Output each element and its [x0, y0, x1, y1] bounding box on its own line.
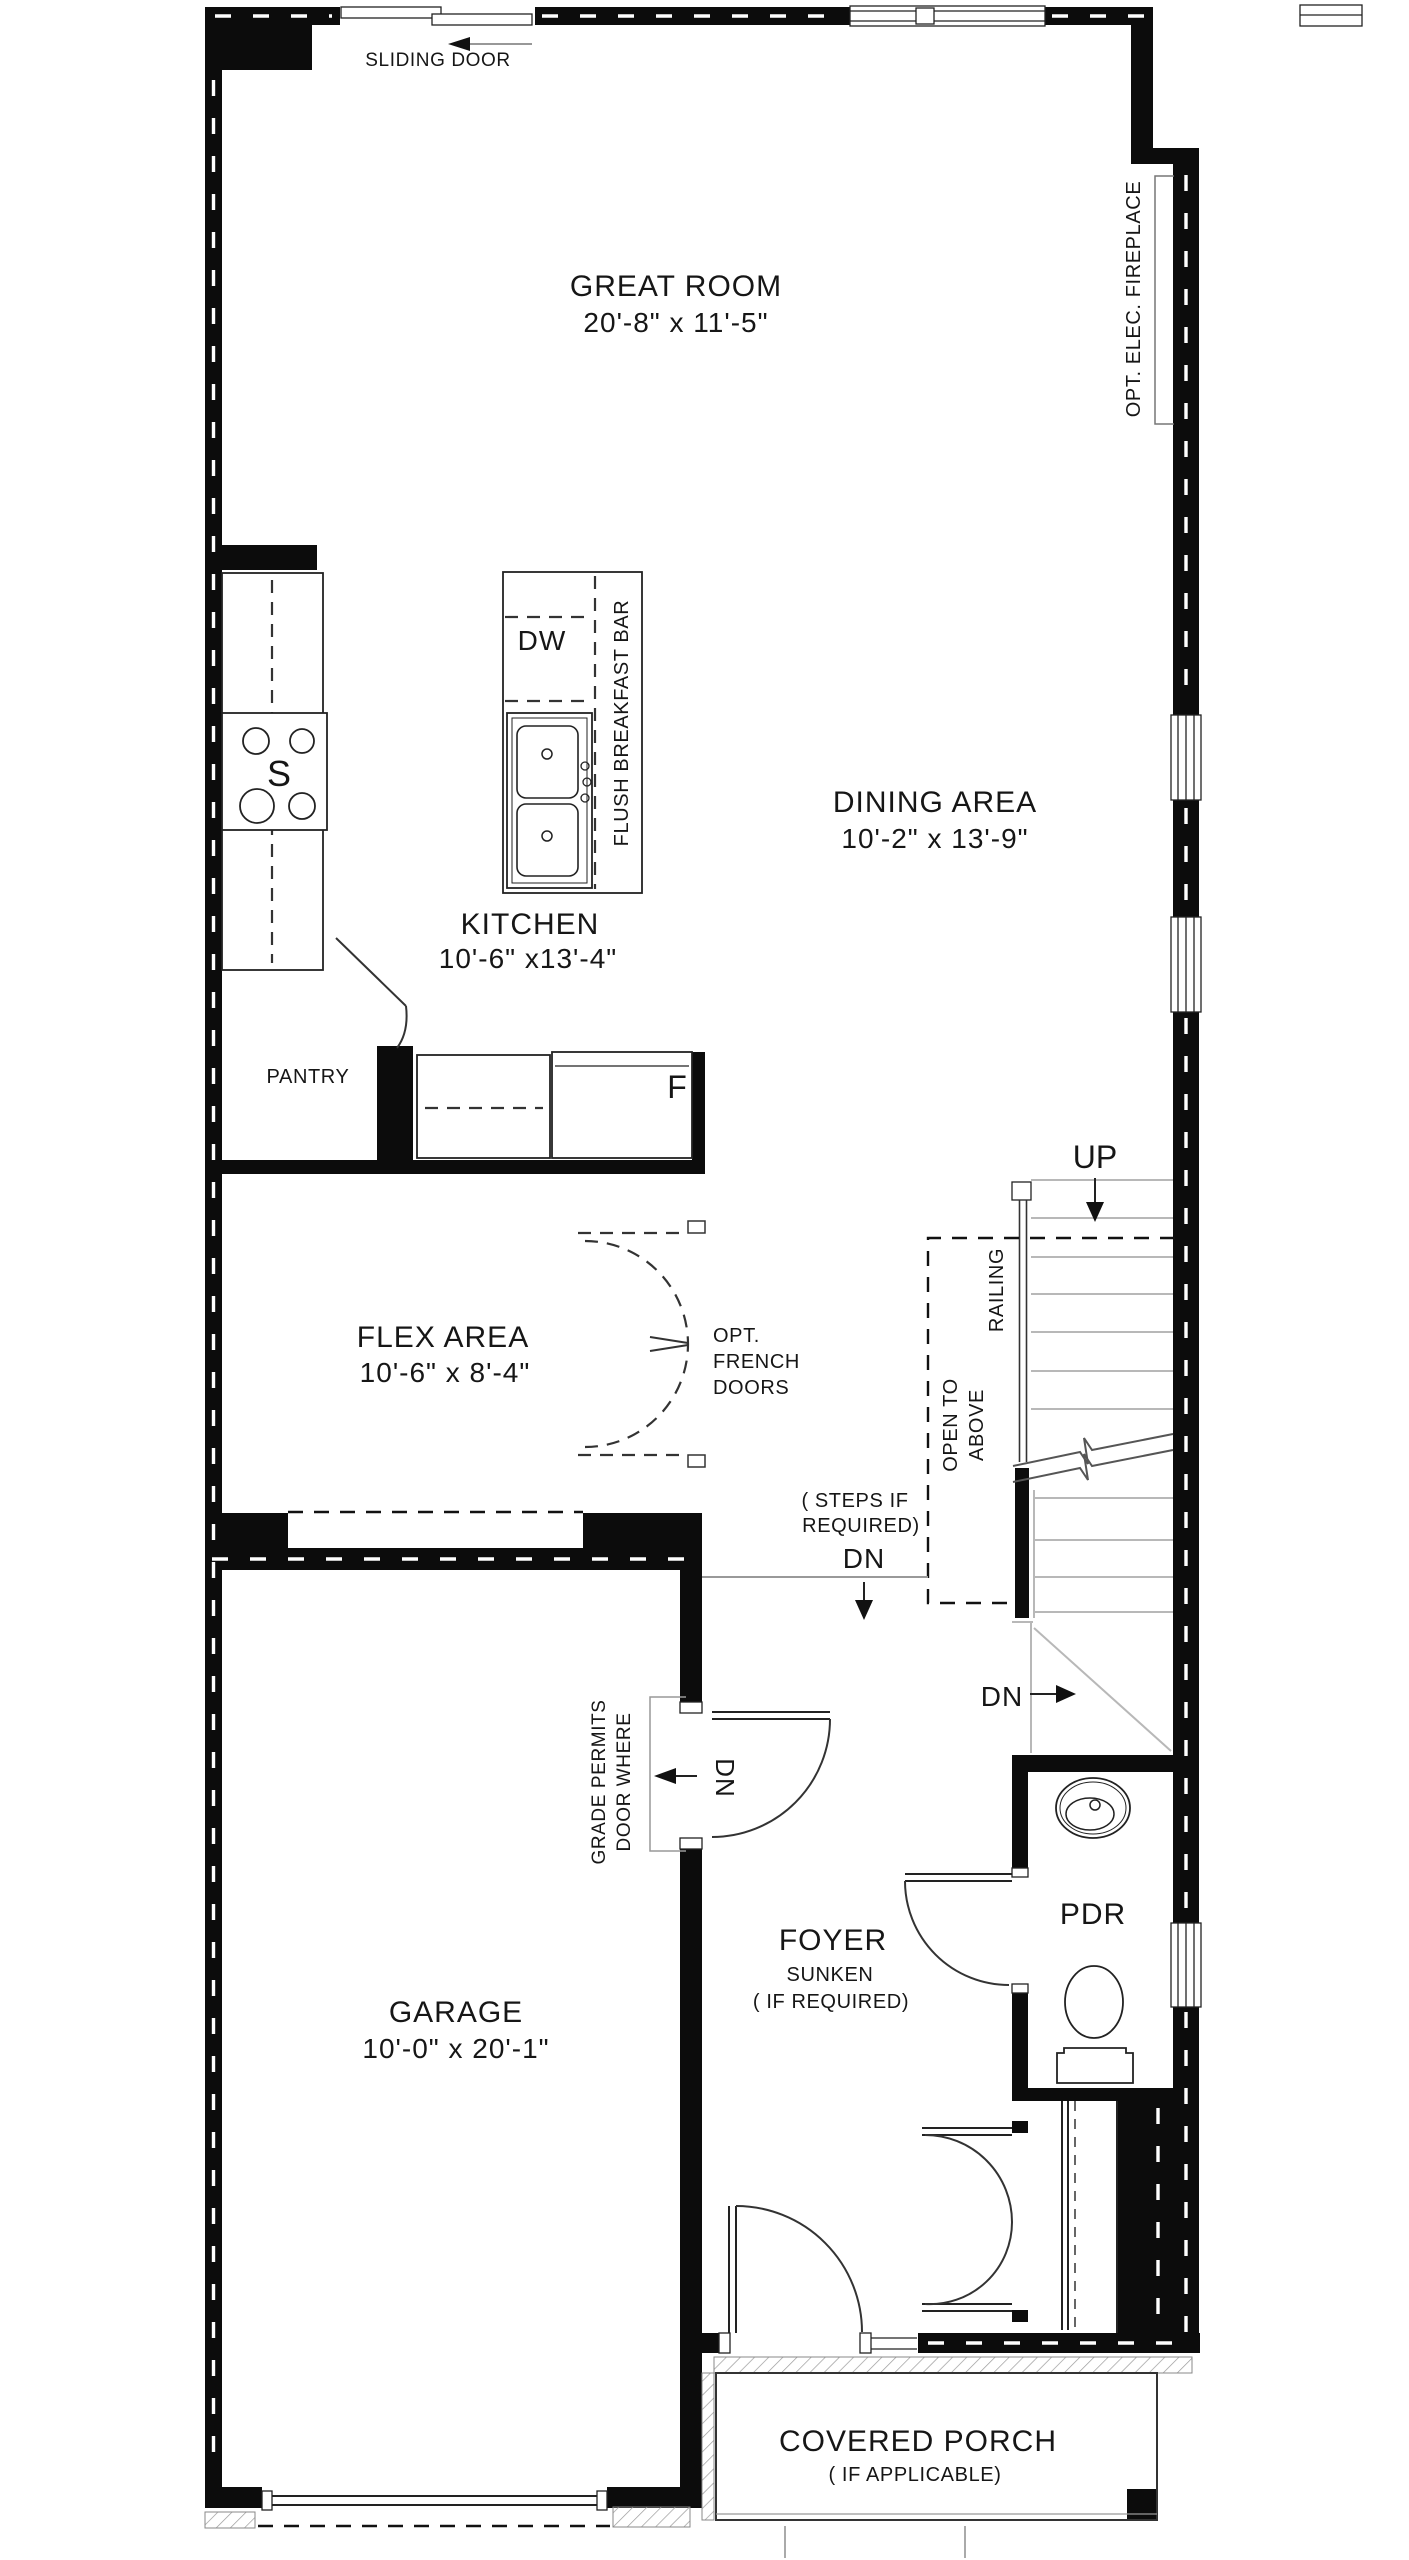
counter-lower	[417, 1055, 550, 1158]
pdr-sink	[1056, 1778, 1130, 1838]
label-flush-breakfast-bar: FLUSH BREAKFAST BAR	[611, 600, 633, 847]
label-great-room-dims: 20'-8" x 11'-5"	[583, 307, 768, 338]
label-open-to-above-1: OPEN TO	[940, 1378, 962, 1472]
label-flex: FLEX AREA	[357, 1321, 529, 1354]
label-pantry: PANTRY	[267, 1066, 350, 1088]
label-door-where-2: GRADE PERMITS	[589, 1699, 610, 1864]
window-right-2	[1171, 917, 1201, 1012]
garage-apron-hatch-right	[613, 2507, 690, 2527]
label-pdr: PDR	[1060, 1898, 1126, 1931]
label-porch-if-applicable: ( IF APPLICABLE)	[829, 2464, 1002, 2486]
label-stove: S	[267, 753, 291, 794]
label-great-room: GREAT ROOM	[570, 270, 782, 303]
label-flex-dims: 10'-6" x 8'-4"	[360, 1357, 531, 1388]
label-kitchen: KITCHEN	[461, 908, 600, 941]
label-dn-stairs: DN	[981, 1681, 1023, 1712]
window-right-1	[1171, 715, 1201, 800]
label-steps-2: REQUIRED)	[802, 1515, 920, 1537]
label-foyer: FOYER	[779, 1924, 887, 1957]
label-sliding-door: SLIDING DOOR	[365, 50, 511, 71]
label-garage: GARAGE	[389, 1996, 523, 2029]
porch-step-hatch	[714, 2357, 1192, 2373]
label-dishwasher: DW	[518, 625, 567, 656]
porch-post	[1127, 2489, 1157, 2521]
window-top-right	[1300, 5, 1362, 26]
label-door-where-1: DOOR WHERE	[614, 1713, 635, 1852]
garage-apron-hatch-left	[205, 2512, 255, 2528]
label-covered-porch: COVERED PORCH	[779, 2425, 1057, 2458]
floor-plan-page: SLIDING DOOR GREAT ROOM 20'-8" x 11'-5" …	[0, 0, 1409, 2560]
railing-post	[1012, 1182, 1031, 1200]
label-opt-french-1: OPT.	[713, 1325, 760, 1347]
window-top	[850, 6, 1045, 26]
window-pdr	[1171, 1923, 1201, 2007]
label-opt-french-3: DOORS	[713, 1377, 789, 1399]
label-opt-elec-fireplace: OPT. ELEC. FIREPLACE	[1123, 181, 1145, 418]
sink-symbol	[507, 713, 592, 888]
label-railing: RAILING	[986, 1248, 1008, 1332]
label-dn-steps: DN	[843, 1543, 885, 1574]
fridge-symbol	[552, 1052, 692, 1158]
label-dining-dims: 10'-2" x 13'-9"	[841, 823, 1028, 854]
label-up: UP	[1073, 1139, 1117, 1175]
label-dining: DINING AREA	[833, 786, 1037, 819]
label-open-to-above-2: ABOVE	[966, 1389, 988, 1461]
label-opt-french-2: FRENCH	[713, 1351, 800, 1373]
label-kitchen-dims: 10'-6" x13'-4"	[439, 943, 617, 974]
floor-plan-drawing: SLIDING DOOR GREAT ROOM 20'-8" x 11'-5" …	[0, 0, 1409, 2560]
label-foyer-if-required: ( IF REQUIRED)	[753, 1991, 909, 2013]
label-garage-dims: 10'-0" x 20'-1"	[362, 2033, 549, 2064]
label-steps-1: ( STEPS IF	[801, 1490, 908, 1512]
label-foyer-sunken: SUNKEN	[787, 1964, 874, 1986]
label-fridge: F	[667, 1069, 687, 1105]
label-dn-garage: DN	[710, 1758, 740, 1798]
